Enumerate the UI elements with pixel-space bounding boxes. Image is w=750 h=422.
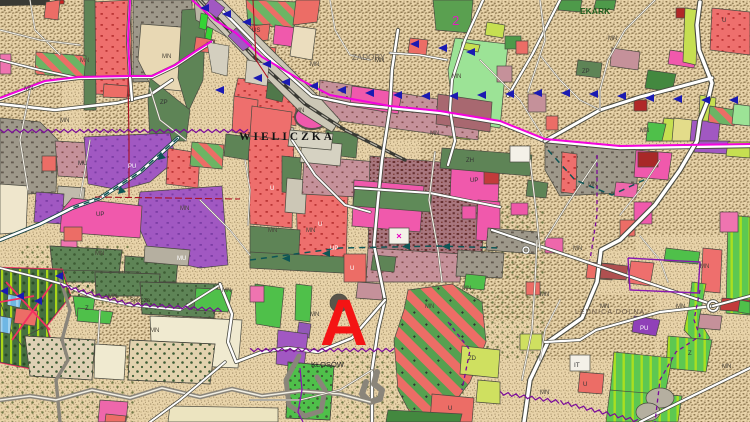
svg-text:MN: MN bbox=[162, 54, 171, 60]
svg-text:MU: MU bbox=[78, 161, 87, 167]
svg-text:U: U bbox=[270, 186, 274, 192]
svg-text:MN: MN bbox=[540, 292, 549, 298]
svg-text:UP: UP bbox=[470, 178, 478, 184]
svg-text:MN: MN bbox=[600, 304, 609, 310]
svg-text:KŁOSÓW: KŁOSÓW bbox=[311, 360, 345, 369]
svg-text:Z: Z bbox=[688, 351, 692, 357]
svg-text:EKARK: EKARK bbox=[580, 6, 611, 16]
svg-text:MU: MU bbox=[177, 256, 186, 262]
svg-text:MN: MN bbox=[588, 182, 597, 188]
svg-text:MN: MN bbox=[573, 246, 582, 252]
svg-text:MN: MN bbox=[430, 131, 439, 137]
svg-text:UP: UP bbox=[330, 246, 338, 252]
svg-text:MN: MN bbox=[108, 294, 117, 300]
svg-text:MN: MN bbox=[306, 228, 315, 234]
svg-text:MN: MN bbox=[24, 86, 33, 92]
svg-text:MN: MN bbox=[462, 286, 471, 292]
svg-text:U: U bbox=[583, 382, 587, 388]
svg-text:MN: MN bbox=[452, 74, 461, 80]
svg-text:MN: MN bbox=[60, 118, 69, 124]
svg-text:U: U bbox=[318, 222, 322, 228]
svg-text:U: U bbox=[448, 406, 452, 412]
svg-text:MN: MN bbox=[222, 288, 231, 294]
svg-text:MN: MN bbox=[295, 108, 304, 114]
svg-text:MN: MN bbox=[375, 58, 384, 64]
svg-text:MN: MN bbox=[722, 364, 731, 370]
svg-text:US: US bbox=[252, 28, 260, 34]
svg-text:MN: MN bbox=[700, 264, 709, 270]
svg-text:A: A bbox=[320, 285, 368, 359]
svg-text:MN: MN bbox=[180, 206, 189, 212]
svg-text:Z: Z bbox=[85, 306, 89, 312]
svg-text:MN: MN bbox=[80, 58, 89, 64]
svg-text:MN: MN bbox=[640, 128, 649, 134]
svg-text:Siercza: Siercza bbox=[130, 298, 151, 304]
svg-text:MN: MN bbox=[676, 304, 685, 310]
svg-text:MN: MN bbox=[425, 304, 434, 310]
svg-text:PU: PU bbox=[640, 326, 648, 332]
svg-text:MN: MN bbox=[150, 328, 159, 334]
svg-text:ZH: ZH bbox=[466, 158, 474, 164]
svg-text:ZD: ZD bbox=[468, 356, 477, 362]
svg-text:IT: IT bbox=[574, 362, 580, 369]
svg-text:WIELICZKA: WIELICZKA bbox=[239, 131, 335, 143]
svg-text:MN: MN bbox=[95, 251, 104, 257]
svg-text:MN: MN bbox=[268, 228, 277, 234]
svg-text:MN: MN bbox=[608, 36, 617, 42]
svg-text:2: 2 bbox=[452, 13, 459, 28]
svg-text:MN: MN bbox=[310, 312, 319, 318]
svg-text:U: U bbox=[722, 18, 726, 24]
svg-text:MN: MN bbox=[310, 62, 319, 68]
svg-text:ZP: ZP bbox=[160, 100, 168, 106]
svg-text:ZP: ZP bbox=[582, 69, 590, 75]
svg-text:UP: UP bbox=[96, 212, 104, 218]
svg-text:PU: PU bbox=[128, 164, 136, 170]
svg-text:LEDNICA DOLNA: LEDNICA DOLNA bbox=[575, 309, 645, 316]
svg-text:U: U bbox=[350, 266, 354, 272]
svg-text:MN: MN bbox=[540, 390, 549, 396]
